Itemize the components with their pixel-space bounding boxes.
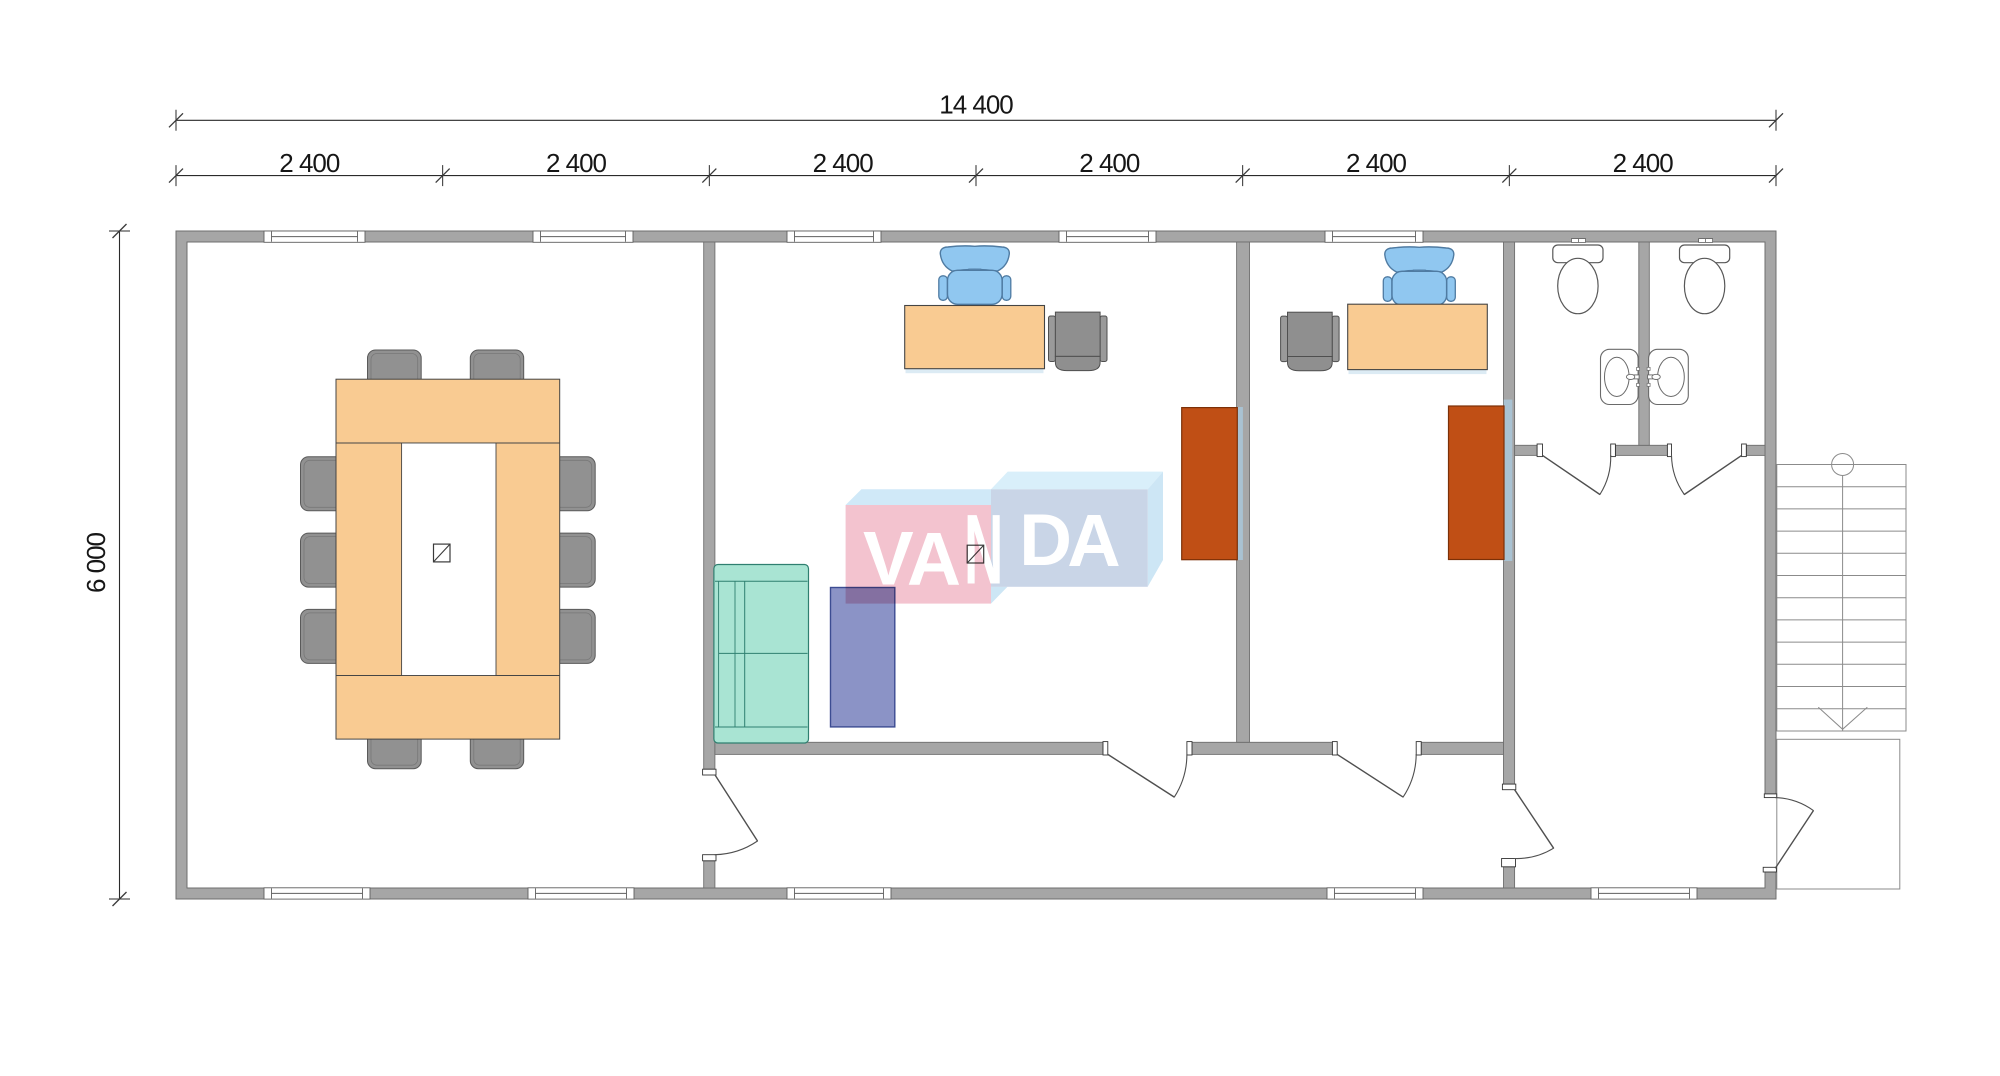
svg-text:2 400: 2 400 — [1079, 148, 1140, 178]
svg-text:A: A — [907, 516, 961, 600]
svg-text:2 400: 2 400 — [1346, 148, 1407, 178]
svg-text:2 400: 2 400 — [279, 148, 340, 178]
svg-text:2 400: 2 400 — [546, 148, 607, 178]
svg-text:N: N — [964, 494, 1003, 604]
svg-text:6 000: 6 000 — [81, 532, 111, 593]
svg-text:2 400: 2 400 — [813, 148, 874, 178]
svg-text:14 400: 14 400 — [939, 90, 1013, 120]
svg-text:2 400: 2 400 — [1613, 148, 1674, 178]
svg-text:D: D — [1019, 500, 1072, 581]
svg-text:A: A — [1067, 499, 1120, 582]
